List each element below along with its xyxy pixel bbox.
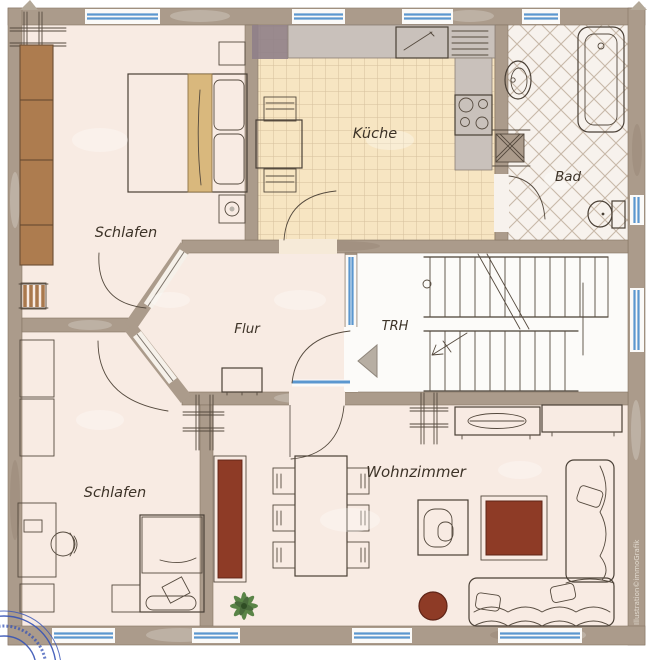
room-label-trh: TRH (382, 319, 409, 334)
roof-spike-left (20, 0, 38, 10)
room-label-kueche: Küche (353, 126, 397, 142)
wall-shelf (214, 456, 246, 582)
wardrobe (20, 45, 53, 265)
pouf (419, 592, 447, 620)
floor-plan: Schlafen Küche Bad Flur TRH Schlafen Woh… (0, 0, 651, 660)
window (630, 195, 644, 225)
coffee-table (481, 496, 547, 560)
plant (230, 592, 258, 620)
room-label-flur: Flur (234, 321, 261, 337)
room-label-schlafen-top: Schlafen (95, 225, 158, 241)
watermark-text: Illustration©immoGrafik (633, 539, 641, 625)
room-label-schlafen-bottom: Schlafen (84, 485, 147, 501)
floor-plan-drawing: Schlafen Küche Bad Flur TRH Schlafen Woh… (0, 0, 651, 660)
room-label-wohnzimmer: Wohnzimmer (366, 463, 467, 481)
room-label-bad: Bad (555, 169, 582, 185)
window (192, 628, 240, 643)
chimney-bad (490, 130, 530, 166)
window (52, 628, 115, 643)
wall-mid-lower (182, 392, 628, 405)
kueche-door-gap (279, 239, 337, 254)
kitchen-counter-top (288, 25, 495, 58)
fridge (252, 25, 288, 59)
window (352, 628, 412, 643)
window (630, 288, 644, 352)
entry-sidelight (346, 255, 357, 327)
wohnzimmer-door-gap (289, 391, 345, 406)
window (85, 9, 160, 24)
bad-door-gap (494, 174, 509, 232)
window (522, 9, 560, 24)
window (402, 9, 453, 24)
roof-spike-right (630, 1, 647, 10)
window (498, 628, 582, 643)
window (292, 9, 345, 24)
wall-mid-upper (182, 240, 628, 253)
kitchen-counter-right (455, 58, 492, 170)
